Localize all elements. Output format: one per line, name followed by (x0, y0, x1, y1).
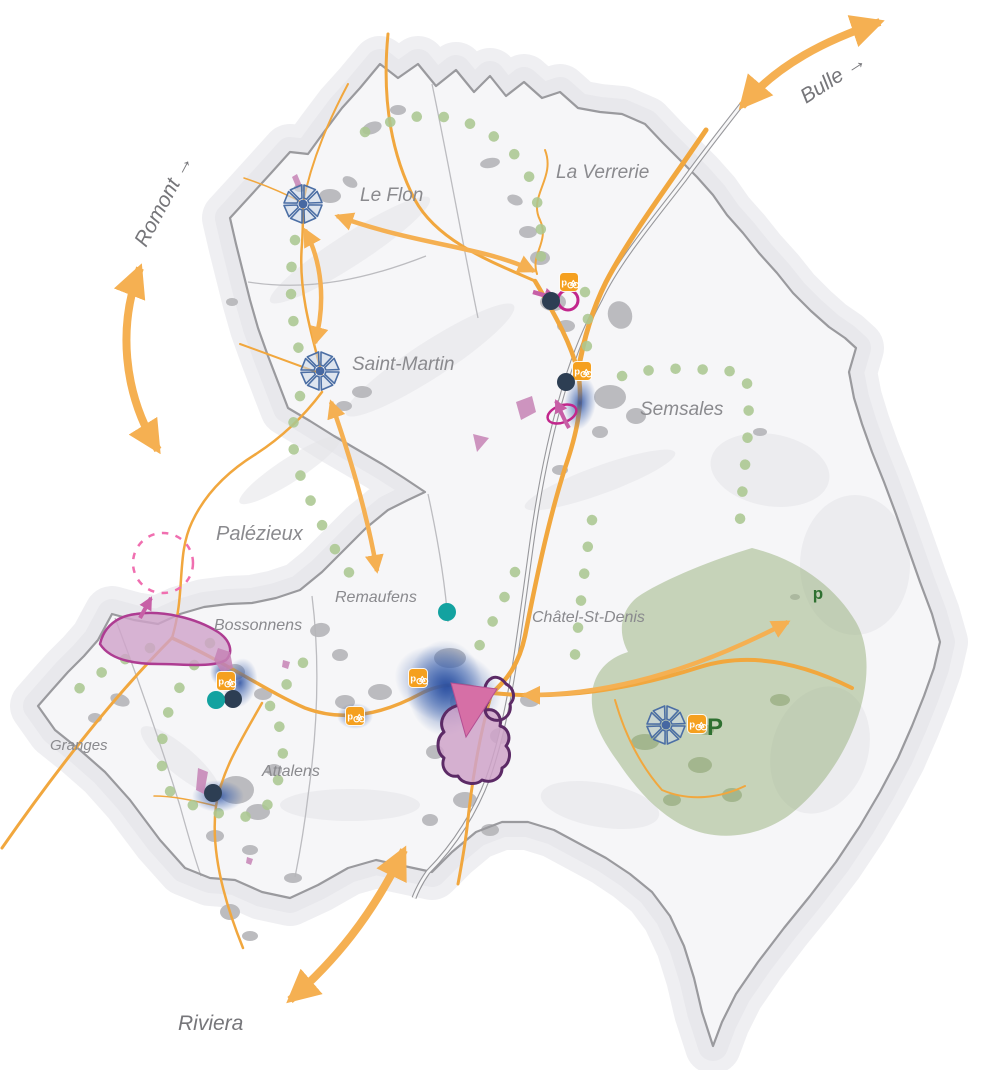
place-label-semsales: Semsales (640, 399, 724, 420)
external-label-romont: Romont → (130, 151, 197, 250)
built-up-area (368, 684, 392, 700)
leisure-zone-forest-patch (770, 694, 790, 706)
place-label-le-flon: Le Flon (360, 185, 423, 206)
bike-station-icon-5: p (409, 669, 428, 688)
leisure-zone-forest-patch (722, 788, 742, 802)
built-up-area (242, 845, 258, 855)
built-up-area (519, 226, 537, 238)
svg-text:p: p (689, 720, 695, 731)
place-label-bossonnens: Bossonnens (214, 617, 302, 634)
terrain-shading (280, 789, 420, 821)
built-up-area (242, 931, 258, 941)
built-up-area (284, 873, 302, 883)
place-label-granges: Granges (50, 737, 108, 754)
bike-station-icon-2: p (573, 362, 592, 381)
built-up-area (352, 386, 372, 398)
built-up-area (594, 385, 626, 409)
stop-dot-dark (224, 690, 242, 708)
place-label-saint-martin: Saint-Martin (352, 354, 454, 375)
place-label-attalens: Attalens (261, 763, 320, 780)
built-up-area (592, 426, 608, 438)
parking-label-p-715: P (707, 714, 723, 741)
stop-dot-teal (438, 603, 456, 621)
built-up-area (753, 428, 767, 436)
stop-dot-dark (542, 292, 560, 310)
stop-dot-dark (204, 784, 222, 802)
leisure-zone-forest-patch (688, 757, 712, 773)
built-up-area (226, 298, 238, 306)
parking-label-p-818: p (813, 584, 823, 603)
svg-text:p: p (410, 674, 416, 685)
arrow-romont (126, 268, 158, 450)
stop-dot-dark (557, 373, 575, 391)
svg-text:p: p (574, 367, 580, 378)
veveyse-mobility-map-stage: ppppppPpLe FlonLa VerrerieSaint-MartinSe… (0, 0, 988, 1070)
svg-text:p: p (347, 712, 353, 723)
built-up-area (332, 649, 348, 661)
veveyse-mobility-map: ppppppPpLe FlonLa VerrerieSaint-MartinSe… (0, 0, 988, 1070)
built-up-area (422, 814, 438, 826)
place-label-pal-zieux: Palézieux (216, 523, 304, 545)
place-label-la-verrerie: La Verrerie (556, 162, 649, 183)
bike-station-icon-6: p (688, 715, 707, 734)
leisure-zone-forest-patch (631, 734, 659, 750)
bike-station-icon-3: p (217, 672, 236, 691)
svg-text:p: p (561, 278, 567, 289)
bike-station-icon-1: p (560, 273, 579, 292)
svg-text:p: p (218, 677, 224, 688)
place-label-ch-tel-st-denis: Châtel-St-Denis (532, 609, 645, 626)
bike-station-icon-4: p (346, 707, 365, 726)
built-up-area (336, 401, 352, 411)
built-up-area (390, 105, 406, 115)
external-label-riviera: Riviera (178, 1012, 243, 1035)
stop-dot-teal (207, 691, 225, 709)
place-label-remaufens: Remaufens (335, 589, 417, 606)
built-up-area (319, 189, 341, 203)
